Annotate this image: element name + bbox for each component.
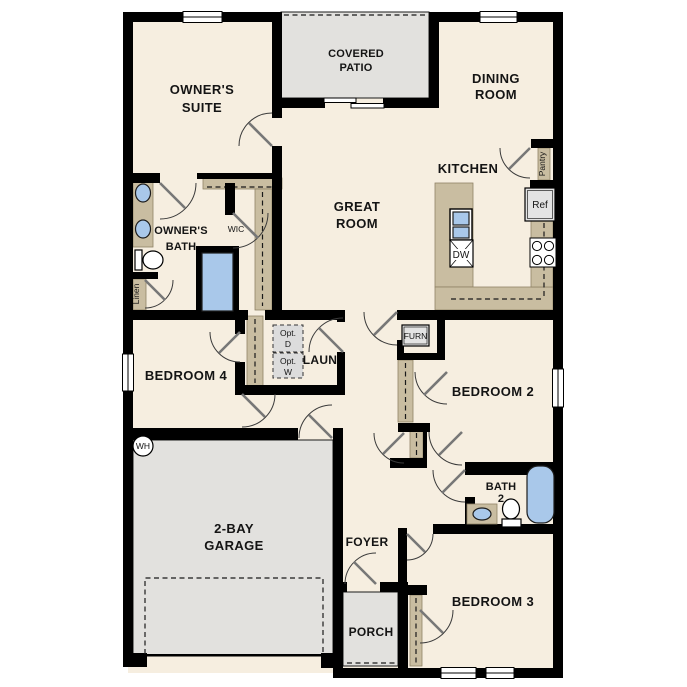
wic-shelf-side (255, 189, 272, 310)
label-foyer: FOYER (346, 535, 389, 549)
bath-sink-1 (136, 184, 151, 202)
stove (530, 238, 556, 267)
label-bath2-2: 2 (498, 493, 504, 505)
label-opt-w-1: Opt. (280, 356, 296, 366)
label-dining-1: DINING (472, 71, 520, 86)
label-bedroom2: BEDROOM 2 (452, 384, 534, 399)
label-porch: PORCH (349, 625, 394, 639)
label-wh: WH (136, 441, 150, 451)
label-great-room-1: GREAT (334, 199, 381, 214)
bedroom3-closet (410, 595, 422, 666)
bath2-toilet-bowl (503, 499, 520, 519)
label-covered-patio-1: COVERED (328, 48, 384, 60)
label-pantry: Pantry (537, 151, 547, 176)
label-opt-d-2: D (285, 339, 291, 349)
label-bath2-1: BATH (486, 481, 517, 493)
label-kitchen: KITCHEN (438, 161, 499, 176)
label-owners-suite-2: SUITE (182, 100, 222, 115)
label-laundry: LAUN (303, 353, 338, 367)
bath2-toilet-tank (502, 519, 521, 527)
label-dining-2: ROOM (475, 87, 517, 102)
label-opt-d-1: Opt. (280, 328, 296, 338)
bedroom4-closet (247, 316, 263, 386)
label-bedroom4: BEDROOM 4 (145, 368, 228, 383)
bath2-tub (527, 466, 554, 523)
label-owners-bath-2: BATH (166, 241, 197, 253)
label-furn: FURN (404, 331, 428, 341)
label-bedroom3: BEDROOM 3 (452, 594, 534, 609)
bath-sink-2 (136, 220, 151, 238)
label-opt-w-2: W (284, 367, 292, 377)
label-garage-1: 2-BAY (214, 521, 254, 536)
label-owners-bath-1: OWNER'S (154, 225, 208, 237)
label-linen: Linen (131, 283, 141, 304)
patio-sliding-door-2 (351, 104, 384, 109)
toilet-tank (135, 250, 142, 270)
floorplan-page: OWNER'S SUITE COVERED PATIO DINING ROOM … (0, 0, 687, 687)
label-wic: WIC (228, 224, 245, 234)
shower (202, 253, 233, 311)
label-owners-suite-1: OWNER'S (170, 82, 234, 97)
label-great-room-2: ROOM (336, 216, 378, 231)
toilet-bowl (143, 251, 163, 269)
label-ref: Ref (532, 200, 548, 211)
floorplan-canvas: OWNER'S SUITE COVERED PATIO DINING ROOM … (0, 0, 687, 687)
label-dw: DW (453, 250, 470, 261)
bath2-sink (473, 508, 491, 520)
label-covered-patio-2: PATIO (340, 62, 373, 74)
label-garage-2: GARAGE (204, 538, 263, 553)
patio-sliding-door (324, 98, 356, 103)
